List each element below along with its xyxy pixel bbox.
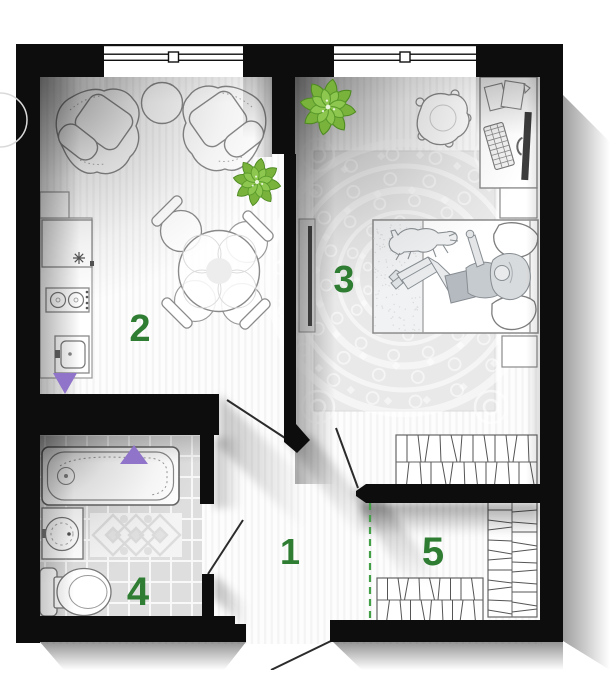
svg-text:4: 4 [127,570,150,614]
svg-text:3: 3 [333,259,354,301]
svg-text:5: 5 [422,530,444,574]
svg-text:2: 2 [129,308,150,350]
svg-text:1: 1 [280,531,300,572]
